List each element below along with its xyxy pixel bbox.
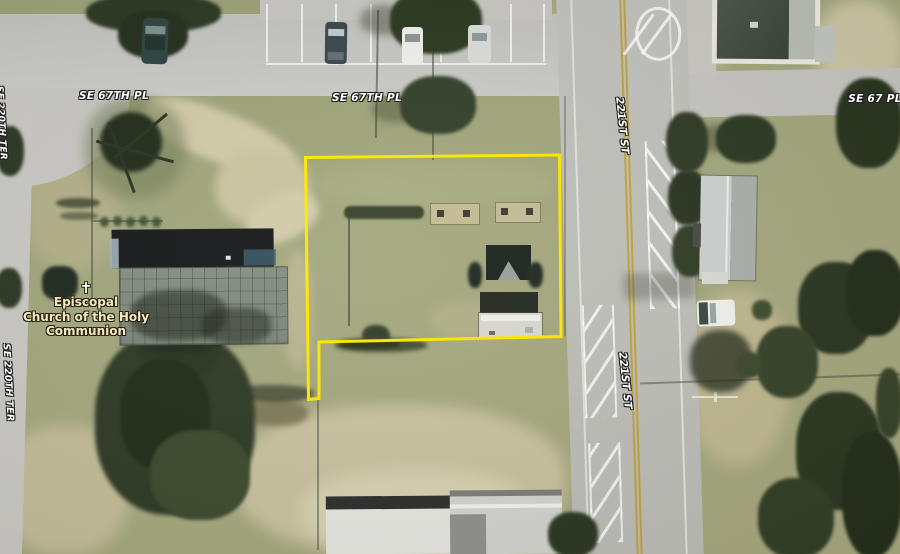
poi-label-line2: Church of the Holy bbox=[22, 310, 150, 325]
street-label-se-67th-pl-west: SE 67TH PL bbox=[64, 90, 164, 102]
cross-icon: ✝ bbox=[22, 281, 150, 295]
poi-label-church: ✝ Episcopal Church of the Holy Communion bbox=[22, 281, 150, 339]
poi-label-line1: Episcopal bbox=[22, 295, 150, 310]
map-canvas[interactable]: SE 67TH PL SE 67TH PL SE 67 PL 221ST ST … bbox=[0, 0, 900, 554]
street-label-se-67th-pl-center: SE 67TH PL bbox=[317, 92, 417, 104]
parcel-boundary[interactable] bbox=[306, 155, 562, 400]
street-label-se-67-pl-east: SE 67 PL bbox=[827, 93, 900, 105]
parcel-boundary-layer bbox=[0, 0, 900, 554]
poi-label-line3: Communion bbox=[22, 324, 150, 339]
